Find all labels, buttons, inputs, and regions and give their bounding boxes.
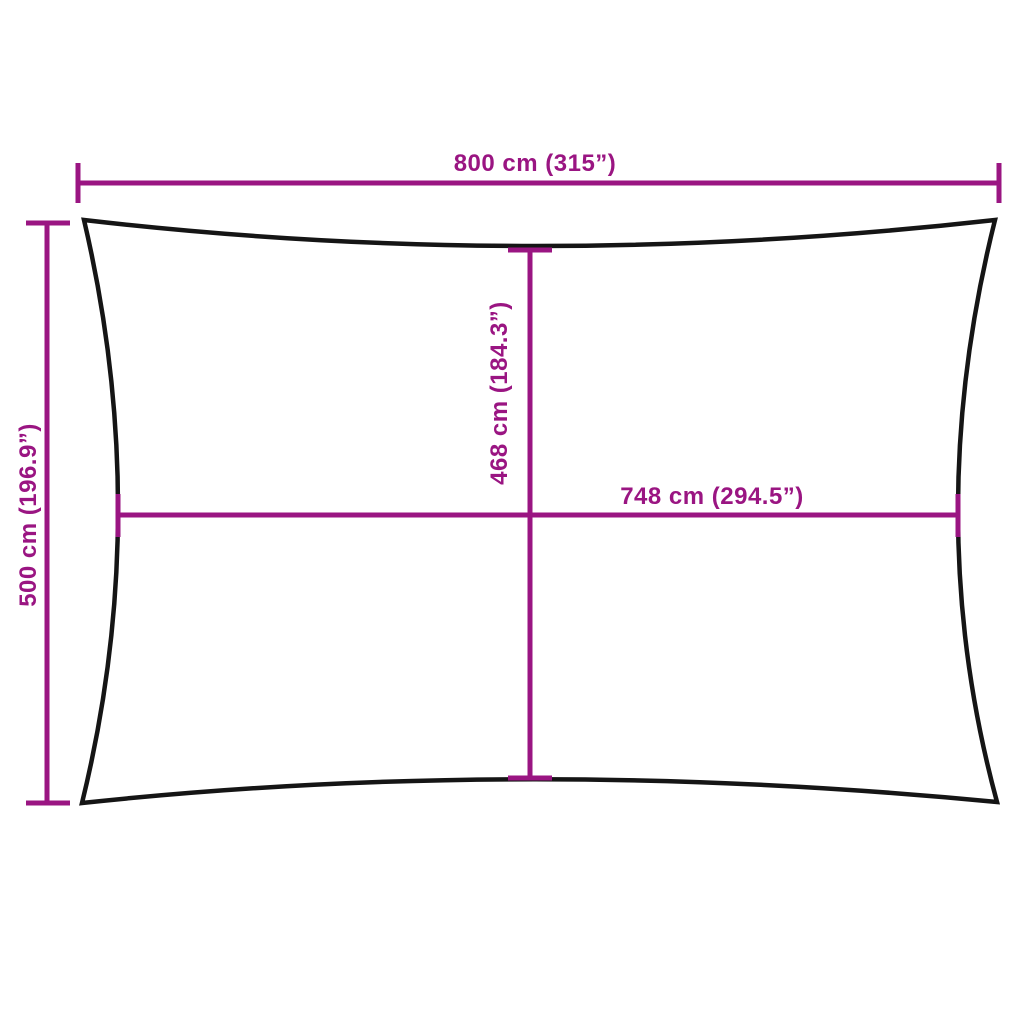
center-width-label: 748 cm (294.5”) <box>620 483 804 510</box>
overall-width-label: 800 cm (315”) <box>454 150 617 177</box>
dimension-overall-height: 500 cm (196.9”) <box>15 223 70 803</box>
diagram-canvas: 800 cm (315”) 500 cm (196.9”) 468 cm (18… <box>0 0 1024 1024</box>
center-height-label: 468 cm (184.3”) <box>486 301 513 485</box>
dimension-overall-width: 800 cm (315”) <box>78 150 999 203</box>
product-dimension-diagram: 800 cm (315”) 500 cm (196.9”) 468 cm (18… <box>0 0 1024 1024</box>
dimension-center-width: 748 cm (294.5”) <box>118 483 958 537</box>
sail-outline <box>82 220 997 803</box>
overall-height-label: 500 cm (196.9”) <box>15 423 42 607</box>
